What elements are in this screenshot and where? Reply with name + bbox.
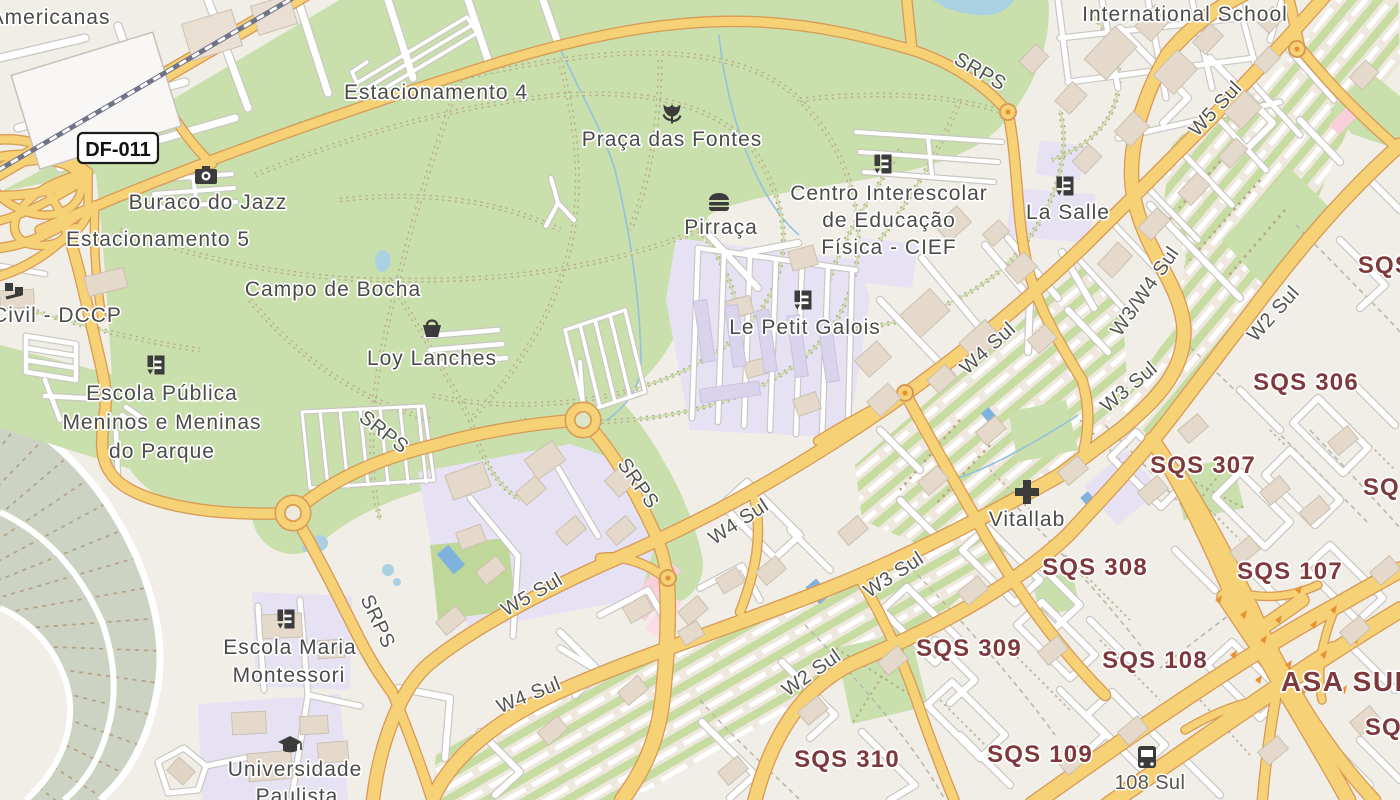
svg-text:Física - CIEF: Física - CIEF xyxy=(821,236,957,259)
svg-text:SQS 309: SQS 309 xyxy=(916,635,1022,662)
svg-text:SQS: SQS xyxy=(1365,714,1400,741)
svg-text:Buraco do Jazz: Buraco do Jazz xyxy=(129,191,288,214)
svg-text:La Salle: La Salle xyxy=(1026,201,1110,224)
svg-text:Escola Maria: Escola Maria xyxy=(223,636,356,659)
svg-text:SQS 107: SQS 107 xyxy=(1237,558,1343,585)
svg-text:108 Sul: 108 Sul xyxy=(1115,772,1186,794)
svg-text:SQS: SQS xyxy=(1363,474,1400,501)
svg-text:SQS 108: SQS 108 xyxy=(1102,647,1208,674)
svg-text:Estacionamento 5: Estacionamento 5 xyxy=(66,228,250,251)
svg-text:Meninos e Meninas: Meninos e Meninas xyxy=(62,411,261,434)
svg-text:SQS 306: SQS 306 xyxy=(1253,369,1359,396)
svg-text:Americanas: Americanas xyxy=(0,6,110,29)
svg-text:Vitallab: Vitallab xyxy=(989,508,1066,531)
svg-text:Civil - DCCP: Civil - DCCP xyxy=(0,304,122,327)
svg-text:International School: International School xyxy=(1082,3,1288,26)
svg-text:Montessori: Montessori xyxy=(233,664,346,687)
svg-text:Escola Pública: Escola Pública xyxy=(86,382,238,405)
svg-text:DF-011: DF-011 xyxy=(85,139,151,161)
svg-text:Campo de Bocha: Campo de Bocha xyxy=(245,278,421,301)
svg-text:SQS: SQS xyxy=(1358,252,1400,279)
svg-text:Loy Lanches: Loy Lanches xyxy=(367,347,497,370)
svg-text:SQS 109: SQS 109 xyxy=(987,741,1093,768)
svg-text:SQS 308: SQS 308 xyxy=(1042,554,1148,581)
svg-text:SQS 307: SQS 307 xyxy=(1150,452,1256,479)
svg-text:SQS 310: SQS 310 xyxy=(794,746,900,773)
svg-text:de Educação: de Educação xyxy=(822,209,956,232)
svg-text:Le Petit Galois: Le Petit Galois xyxy=(729,316,881,339)
svg-text:Centro Interescolar: Centro Interescolar xyxy=(790,182,988,205)
svg-text:Praça das Fontes: Praça das Fontes xyxy=(582,128,763,151)
svg-text:Pirraça: Pirraça xyxy=(684,216,758,239)
svg-text:ASA SUL: ASA SUL xyxy=(1281,666,1400,697)
svg-text:do Parque: do Parque xyxy=(109,440,215,463)
svg-text:Estacionamento 4: Estacionamento 4 xyxy=(344,81,528,104)
svg-text:Universidade: Universidade xyxy=(228,758,363,781)
svg-text:Paulista: Paulista xyxy=(256,785,339,800)
